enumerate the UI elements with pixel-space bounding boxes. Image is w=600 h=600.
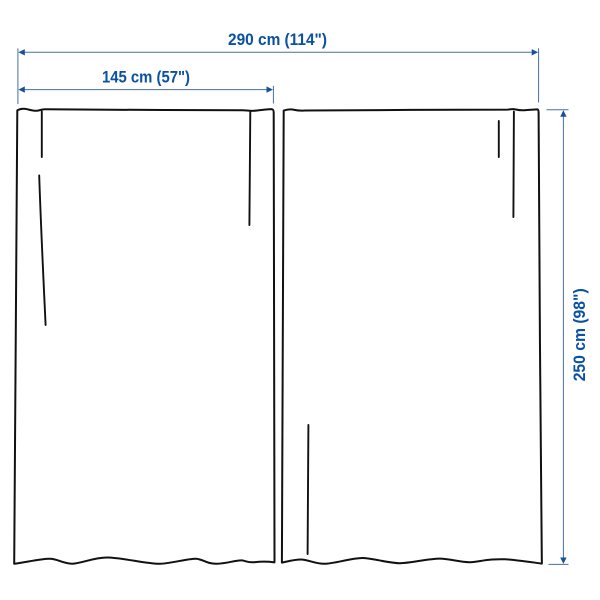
svg-text:145 cm (57"): 145 cm (57") — [102, 69, 190, 87]
svg-text:250 cm (98"): 250 cm (98") — [570, 288, 589, 381]
svg-text:290 cm (114"): 290 cm (114") — [228, 31, 327, 49]
